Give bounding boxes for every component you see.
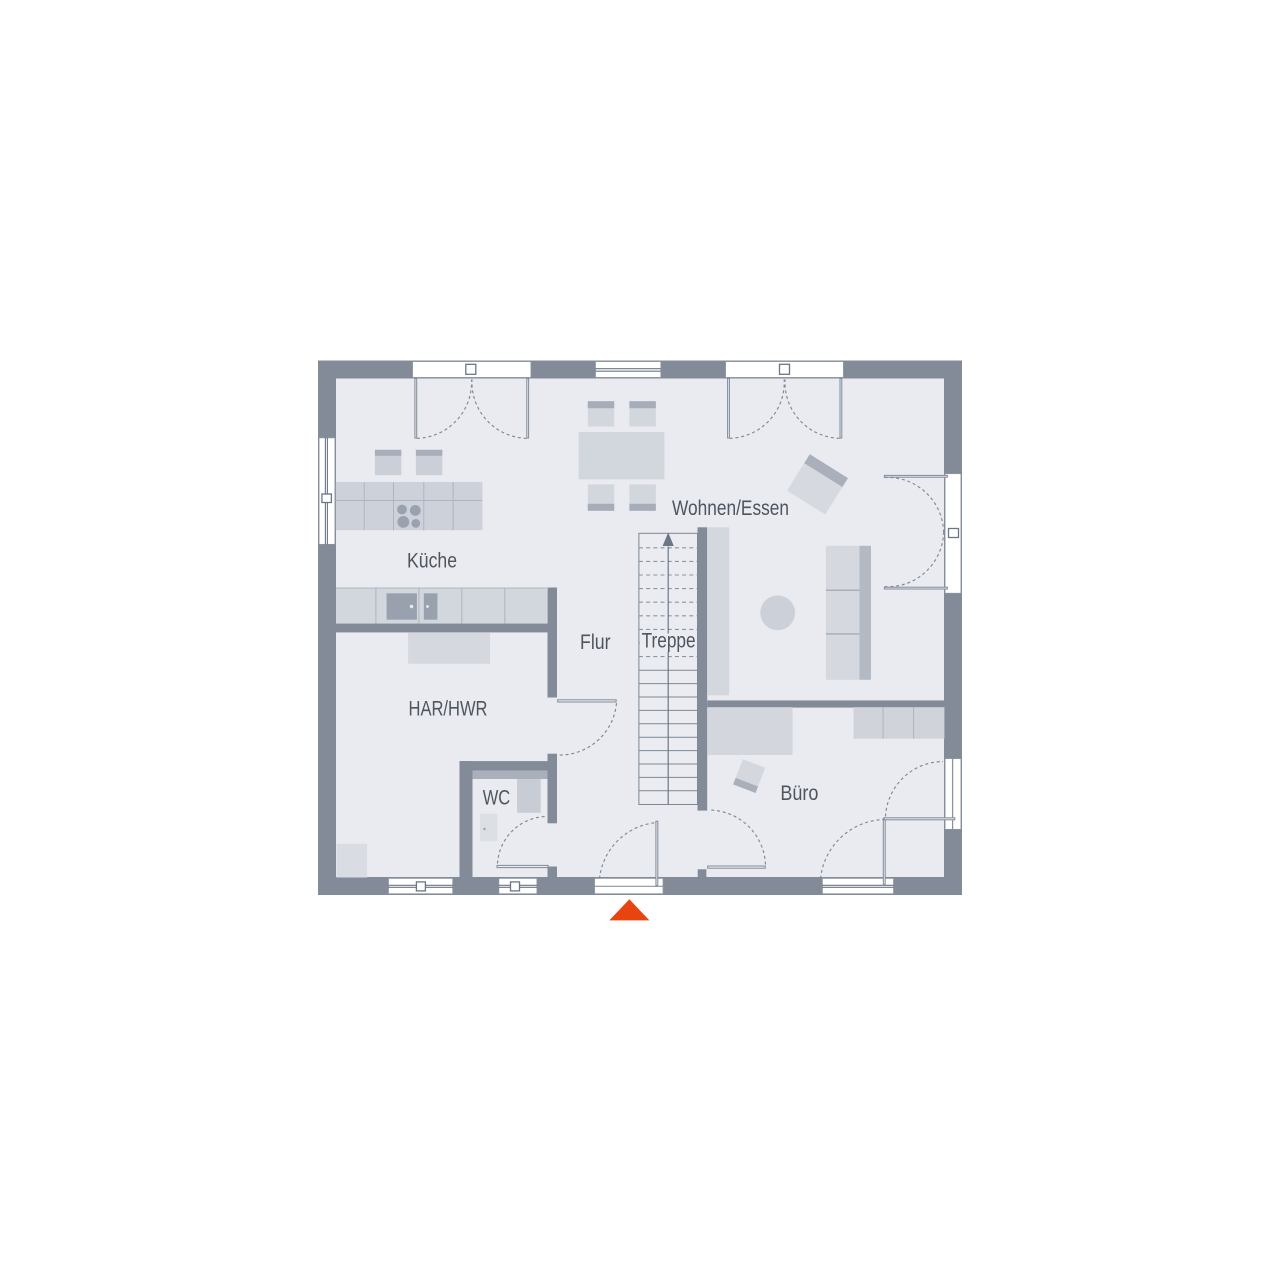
svg-text:Flur: Flur: [580, 631, 611, 654]
svg-text:Büro: Büro: [780, 782, 818, 805]
svg-text:HAR/HWR: HAR/HWR: [409, 697, 488, 720]
svg-text:Küche: Küche: [407, 550, 457, 573]
svg-text:WC: WC: [483, 787, 511, 810]
svg-text:Treppe: Treppe: [642, 630, 696, 653]
svg-text:Wohnen/Essen: Wohnen/Essen: [672, 497, 789, 520]
